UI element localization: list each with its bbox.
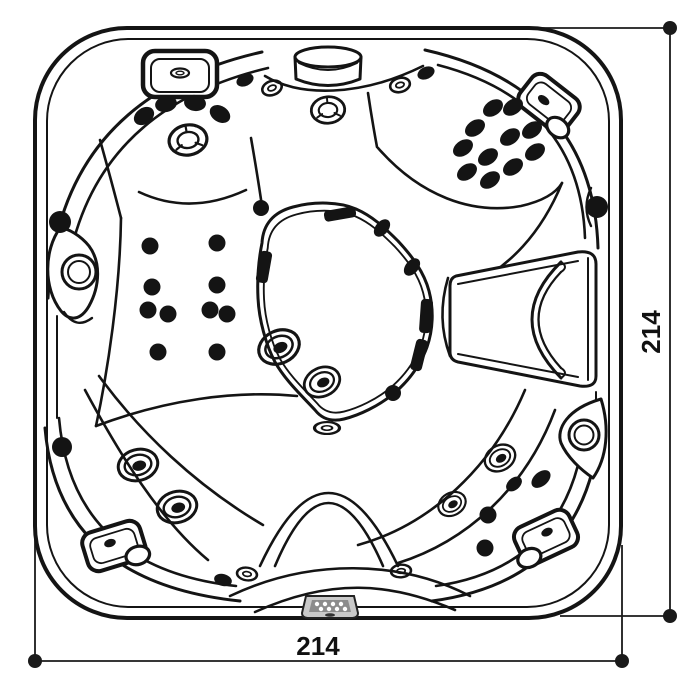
jet-dot (49, 211, 71, 233)
spa-technical-drawing: 214 214 (0, 0, 700, 700)
jet-oval (450, 136, 477, 161)
top-knob (295, 47, 361, 86)
jet-dot (144, 279, 161, 296)
jet-oval (480, 96, 507, 121)
jet-dot (52, 437, 72, 457)
footwell-outer (258, 203, 432, 420)
control-panel (302, 596, 358, 618)
jet-swirl (154, 487, 201, 527)
headrest-top-left (143, 51, 217, 97)
jet-dot (477, 540, 494, 557)
panel-button (335, 607, 339, 611)
spa-diagram-canvas: 214 214 (0, 0, 700, 700)
jet-dot (586, 196, 608, 218)
bench-front-edge (230, 568, 470, 596)
jet-oval (130, 103, 157, 129)
dimension-label-right: 214 (636, 310, 666, 354)
panel-button (331, 602, 335, 606)
jet-spoke (310, 95, 346, 124)
headrest-bottom-right (505, 506, 582, 571)
jet-oval (522, 140, 549, 165)
left-corner-fitting (48, 228, 98, 323)
dimension-endpoint (663, 21, 677, 35)
jet-oval (475, 145, 502, 170)
seat-pan-edge (96, 218, 121, 426)
jet-dot (160, 306, 177, 323)
panel-button (315, 602, 319, 606)
jet-spoke (167, 122, 210, 158)
seat-shoulder-line (139, 190, 246, 204)
jet-dot (209, 235, 226, 252)
dimension-endpoint (663, 609, 677, 623)
dome-inner (275, 503, 383, 566)
jet-swirl (480, 439, 520, 476)
right-corner-fitting (560, 399, 606, 478)
headrest-bottom-left (79, 518, 151, 579)
footwell (258, 203, 432, 420)
jet-dot (202, 302, 219, 319)
jet-dot (253, 200, 269, 216)
jet-dot (142, 238, 159, 255)
jet-oval (528, 467, 554, 492)
jet-dot (219, 306, 236, 323)
waterfall-feature (450, 252, 596, 387)
jet-oval (462, 116, 489, 141)
jet-oval (415, 64, 436, 82)
jet-oval (454, 160, 481, 185)
jet-nozzle (419, 299, 433, 334)
knob-top (295, 47, 361, 67)
jet-swirl (434, 487, 470, 521)
panel-button (343, 607, 347, 611)
jet-dot (209, 344, 226, 361)
seat-bracket (368, 93, 377, 147)
bottom-seatback-dome (260, 493, 398, 566)
jet-oval (497, 125, 524, 150)
jet-oval (206, 101, 233, 126)
jet-dot (209, 277, 226, 294)
panel-button (339, 602, 343, 606)
jet-ring (236, 566, 258, 581)
seat-pan-edge (99, 376, 263, 525)
panel-display (325, 613, 335, 617)
jet-dot (150, 344, 167, 361)
jet-oval (500, 155, 527, 180)
dimension-endpoint (28, 654, 42, 668)
jet-dot (480, 507, 497, 524)
panel-button (327, 607, 331, 611)
panel-button (319, 607, 323, 611)
jet-ring (315, 422, 340, 434)
seatback-top-right-outer (425, 50, 598, 248)
jet-oval (477, 168, 504, 193)
jet-dot (385, 385, 401, 401)
jet-ring (260, 78, 284, 98)
dimension-label-bottom: 214 (296, 631, 340, 661)
panel-button (323, 602, 327, 606)
jet-dot (140, 302, 157, 319)
dimension-endpoint (615, 654, 629, 668)
